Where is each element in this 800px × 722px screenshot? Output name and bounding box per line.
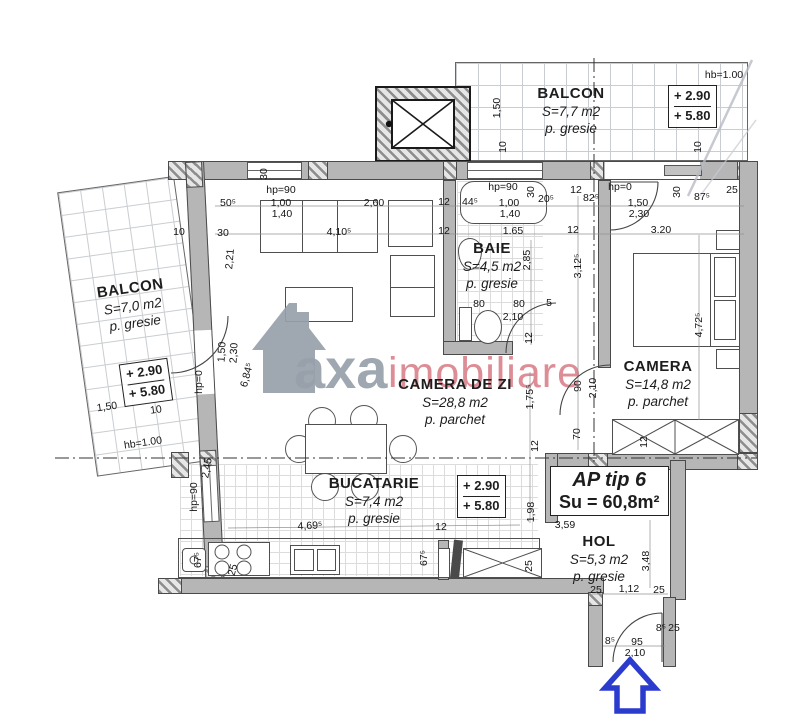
dimension-label: 10	[173, 226, 185, 238]
dimension-label: 44⁵	[462, 196, 478, 208]
dimension-label: 10	[692, 141, 704, 153]
dimension-label: 25	[668, 622, 680, 634]
dimension-label: 30	[258, 168, 270, 180]
dimension-label: 12	[435, 521, 447, 533]
nightstand	[716, 349, 740, 369]
level-marker-balcon-top: + 2.90 + 5.80	[668, 85, 717, 128]
dimension-label: 90	[572, 380, 584, 392]
room-area: S=7,4 m2	[329, 494, 420, 511]
room-label-hol: HOL S=5,3 m2 p. gresie	[570, 533, 628, 586]
coffee-table	[285, 287, 353, 322]
dimension-label: 12	[567, 224, 579, 236]
door-panel	[438, 548, 450, 578]
level-value: + 5.80	[463, 496, 500, 516]
wardrobe	[612, 419, 739, 455]
wall-hatched	[739, 413, 758, 453]
dimension-label: 2,10	[625, 647, 645, 659]
dimension-label: 67⁵	[418, 550, 430, 566]
wall-hol-right	[670, 460, 686, 600]
room-name: CAMERA	[624, 358, 693, 377]
dimension-label: 3,48	[640, 551, 652, 571]
dimension-label: 4,72⁵	[693, 313, 705, 338]
room-floor: p. parchet	[398, 411, 512, 428]
room-label-bucatarie: BUCATARIE S=7,4 m2 p. gresie	[329, 475, 420, 528]
wall-hatched	[185, 161, 203, 188]
dimension-label: 25	[590, 584, 602, 596]
dimension-label: 2,60	[364, 197, 384, 209]
dimension-label: hp=0	[608, 181, 632, 193]
dimension-label: 67⁵	[192, 552, 204, 568]
dimension-label: 8⁵	[605, 635, 615, 647]
pillow	[714, 257, 736, 297]
room-label-balcon-top: BALCON S=7,7 m2 p. gresie	[537, 85, 604, 138]
dimension-label: 12	[438, 225, 450, 237]
dimension-label: 1,75⁵	[524, 385, 536, 410]
entrance-arrow-icon	[605, 660, 655, 711]
pillow	[714, 300, 736, 340]
dimension-label: 1,98	[525, 502, 537, 522]
dimension-label: 10	[497, 141, 509, 153]
tv-cabinet	[390, 255, 435, 317]
dimension-label: 50⁵	[220, 197, 236, 209]
room-floor: p. gresie	[537, 120, 604, 137]
room-label-baie: BAIE S=4,5 m2 p. gresie	[463, 240, 521, 293]
level-marker-bucatarie: + 2.90 + 5.80	[457, 475, 506, 518]
room-name: CAMERA DE ZI	[398, 376, 512, 395]
dimension-label: 1.65	[503, 225, 523, 237]
room-name: HOL	[570, 533, 628, 552]
wall-hatched	[590, 161, 604, 180]
dimension-label: 1,40	[272, 208, 292, 220]
wall-kitchen-bottom	[158, 578, 604, 594]
dimension-label: hp=90	[266, 184, 296, 196]
dimension-label: 30	[525, 186, 537, 198]
dimension-label: 82⁵	[583, 192, 599, 204]
window-living-top	[247, 162, 302, 179]
dining-table	[305, 424, 387, 474]
toilet-bowl	[474, 310, 502, 344]
level-marker-balcon-left: + 2.90 + 5.80	[119, 358, 173, 407]
shaft-cabin	[391, 99, 455, 149]
dimension-label: 25	[726, 184, 738, 196]
dimension-label: 12	[523, 332, 535, 344]
dimension-label: 70	[571, 428, 583, 440]
wall-hatched	[443, 161, 457, 180]
dimension-label: 2,10	[587, 378, 599, 398]
dimension-label: 12	[438, 196, 450, 208]
dimension-label: 30	[671, 186, 683, 198]
dimension-label: 5	[546, 297, 552, 309]
dimension-label: 10	[149, 403, 162, 417]
dimension-label: 4,10⁵	[327, 226, 352, 238]
room-area: S=5,3 m2	[570, 552, 628, 569]
floor-plan: BALCON S=7,7 m2 p. gresie + 2.90 + 5.80 …	[0, 0, 800, 722]
tv-cabinet-divider	[391, 287, 434, 288]
dimension-label: 25	[523, 560, 535, 572]
dimension-label: 2,30	[227, 342, 240, 363]
wall-hatched	[158, 578, 182, 594]
dimension-label: 1,50	[215, 341, 228, 362]
dimension-label: 3,59	[555, 519, 575, 531]
sink-bowl	[317, 549, 336, 571]
toilet-tank	[459, 307, 472, 341]
dimension-label: 12	[529, 440, 541, 452]
sink-bowl	[294, 549, 314, 571]
dimension-label: 2,21	[223, 248, 237, 269]
level-value: + 5.80	[674, 106, 711, 126]
dining-chair	[389, 435, 417, 463]
dimension-label: 6,84⁵	[238, 361, 256, 388]
bed-headboard	[710, 254, 711, 346]
room-label-balcon-left: BALCON S=7,0 m2 p. gresie	[96, 275, 170, 336]
room-floor: p. gresie	[463, 275, 521, 292]
dimension-label: 3,12⁵	[572, 254, 584, 279]
window-bathroom	[467, 162, 543, 179]
room-area: S=4,5 m2	[463, 259, 521, 276]
dimension-label: 25	[653, 584, 665, 596]
wall-camera-left	[598, 180, 611, 368]
dimension-label: 2,85	[521, 250, 533, 270]
wall-hatched	[308, 161, 328, 180]
dimension-label: hp=90	[188, 482, 200, 512]
dimension-label: 12	[570, 184, 582, 196]
dimension-label: hb=1.00	[705, 69, 743, 81]
level-value: + 2.90	[463, 477, 500, 496]
dimension-label: 8⁵	[656, 622, 666, 634]
dimension-label: 4,69⁵	[297, 519, 322, 532]
dimension-label: 20⁵	[538, 193, 554, 205]
room-label-camera: CAMERA S=14,8 m2 p. parchet	[624, 358, 693, 411]
room-name: BAIE	[463, 240, 521, 259]
dimension-label: 2,30	[629, 208, 649, 220]
apartment-type: AP tip 6	[559, 469, 660, 492]
level-value: + 2.90	[674, 87, 711, 106]
room-area: S=7,7 m2	[537, 104, 604, 121]
room-floor: p. parchet	[624, 393, 693, 410]
dimension-label: 12	[638, 436, 650, 448]
wall-hatched	[737, 453, 758, 470]
dimension-label: 2,10	[503, 311, 523, 323]
dimension-label: 1,40	[500, 208, 520, 220]
room-label-living: CAMERA DE ZI S=28,8 m2 p. parchet	[398, 376, 512, 429]
apartment-title-box: AP tip 6 Su = 60,8m²	[550, 466, 669, 516]
room-name: BUCATARIE	[329, 475, 420, 494]
watermark-brand-gray: axa	[294, 336, 387, 401]
dimension-label: 80	[513, 298, 525, 310]
room-name: BALCON	[537, 85, 604, 104]
sofa-divider	[302, 201, 303, 252]
armchair	[388, 200, 433, 247]
wall-hatched	[171, 452, 189, 478]
dimension-label: 3.20	[651, 224, 671, 236]
dimension-label: hp=90	[488, 181, 518, 193]
dimension-label: 1,50	[491, 98, 503, 118]
apartment-area: Su = 60,8m²	[559, 492, 660, 513]
dimension-label: 1,12	[619, 583, 639, 595]
nightstand	[716, 230, 740, 250]
room-area: S=28,8 m2	[398, 395, 512, 412]
dimension-label: 30	[217, 227, 229, 239]
room-area: S=14,8 m2	[624, 377, 693, 394]
stove	[208, 542, 270, 576]
window-sill	[664, 165, 702, 176]
dimension-label: 80	[473, 298, 485, 310]
dimension-label: 87⁵	[694, 191, 710, 203]
dimension-label: hp=0	[193, 370, 205, 394]
room-floor: p. gresie	[329, 510, 420, 527]
